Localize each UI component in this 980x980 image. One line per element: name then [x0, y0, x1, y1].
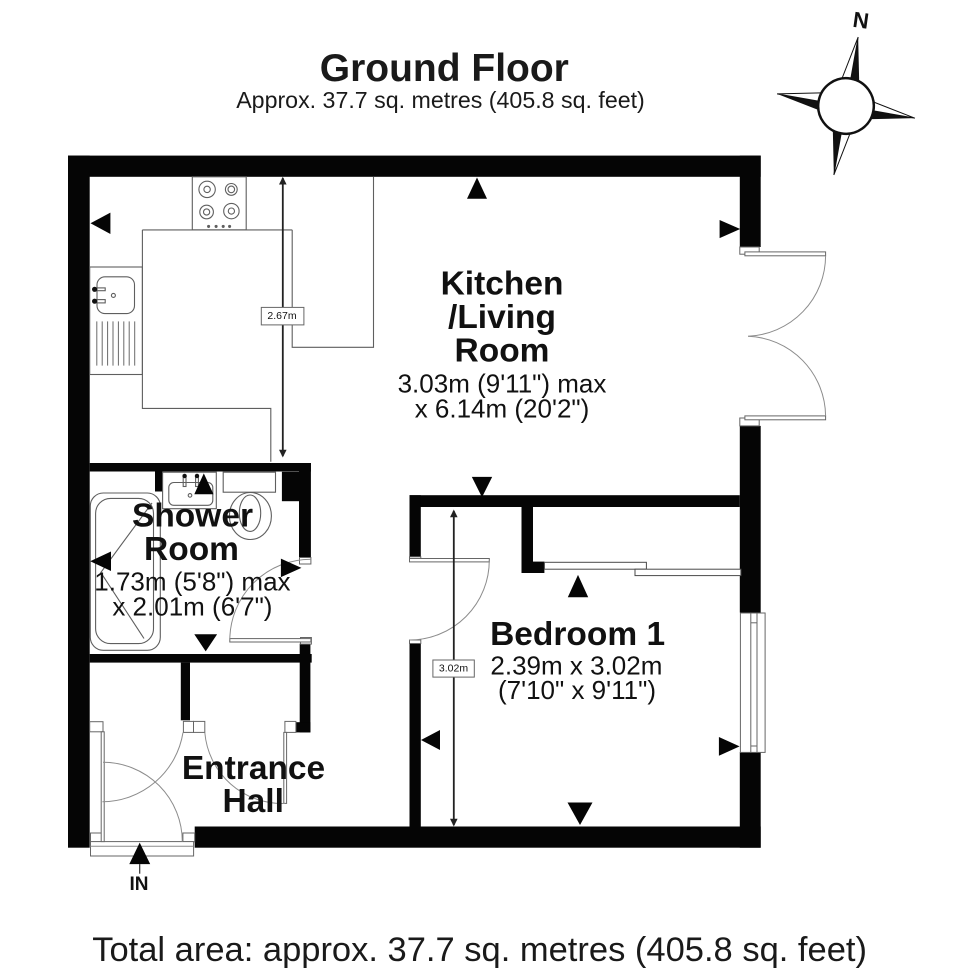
- svg-text:Hall: Hall: [222, 783, 283, 820]
- svg-text:Approx. 37.7 sq. metres (405.8: Approx. 37.7 sq. metres (405.8 sq. feet): [236, 87, 645, 113]
- svg-text:Total area: approx. 37.7 sq. m: Total area: approx. 37.7 sq. metres (405…: [92, 931, 867, 969]
- svg-text:x 6.14m (20'2"): x 6.14m (20'2"): [415, 394, 590, 424]
- svg-text:(7'10" x 9'11"): (7'10" x 9'11"): [498, 675, 656, 705]
- svg-text:Shower: Shower: [132, 498, 253, 535]
- svg-text:/Living: /Living: [448, 299, 556, 336]
- svg-text:Kitchen: Kitchen: [441, 266, 564, 303]
- svg-text:Ground Floor: Ground Floor: [320, 47, 569, 90]
- svg-text:3.02m: 3.02m: [439, 663, 468, 675]
- svg-text:Entrance: Entrance: [182, 750, 325, 787]
- svg-text:Room: Room: [144, 531, 239, 568]
- svg-text:2.67m: 2.67m: [267, 310, 296, 322]
- svg-text:Bedroom 1: Bedroom 1: [490, 616, 665, 653]
- svg-text:IN: IN: [130, 874, 149, 895]
- svg-text:Room: Room: [455, 333, 550, 370]
- svg-text:x 2.01m (6'7"): x 2.01m (6'7"): [112, 592, 272, 622]
